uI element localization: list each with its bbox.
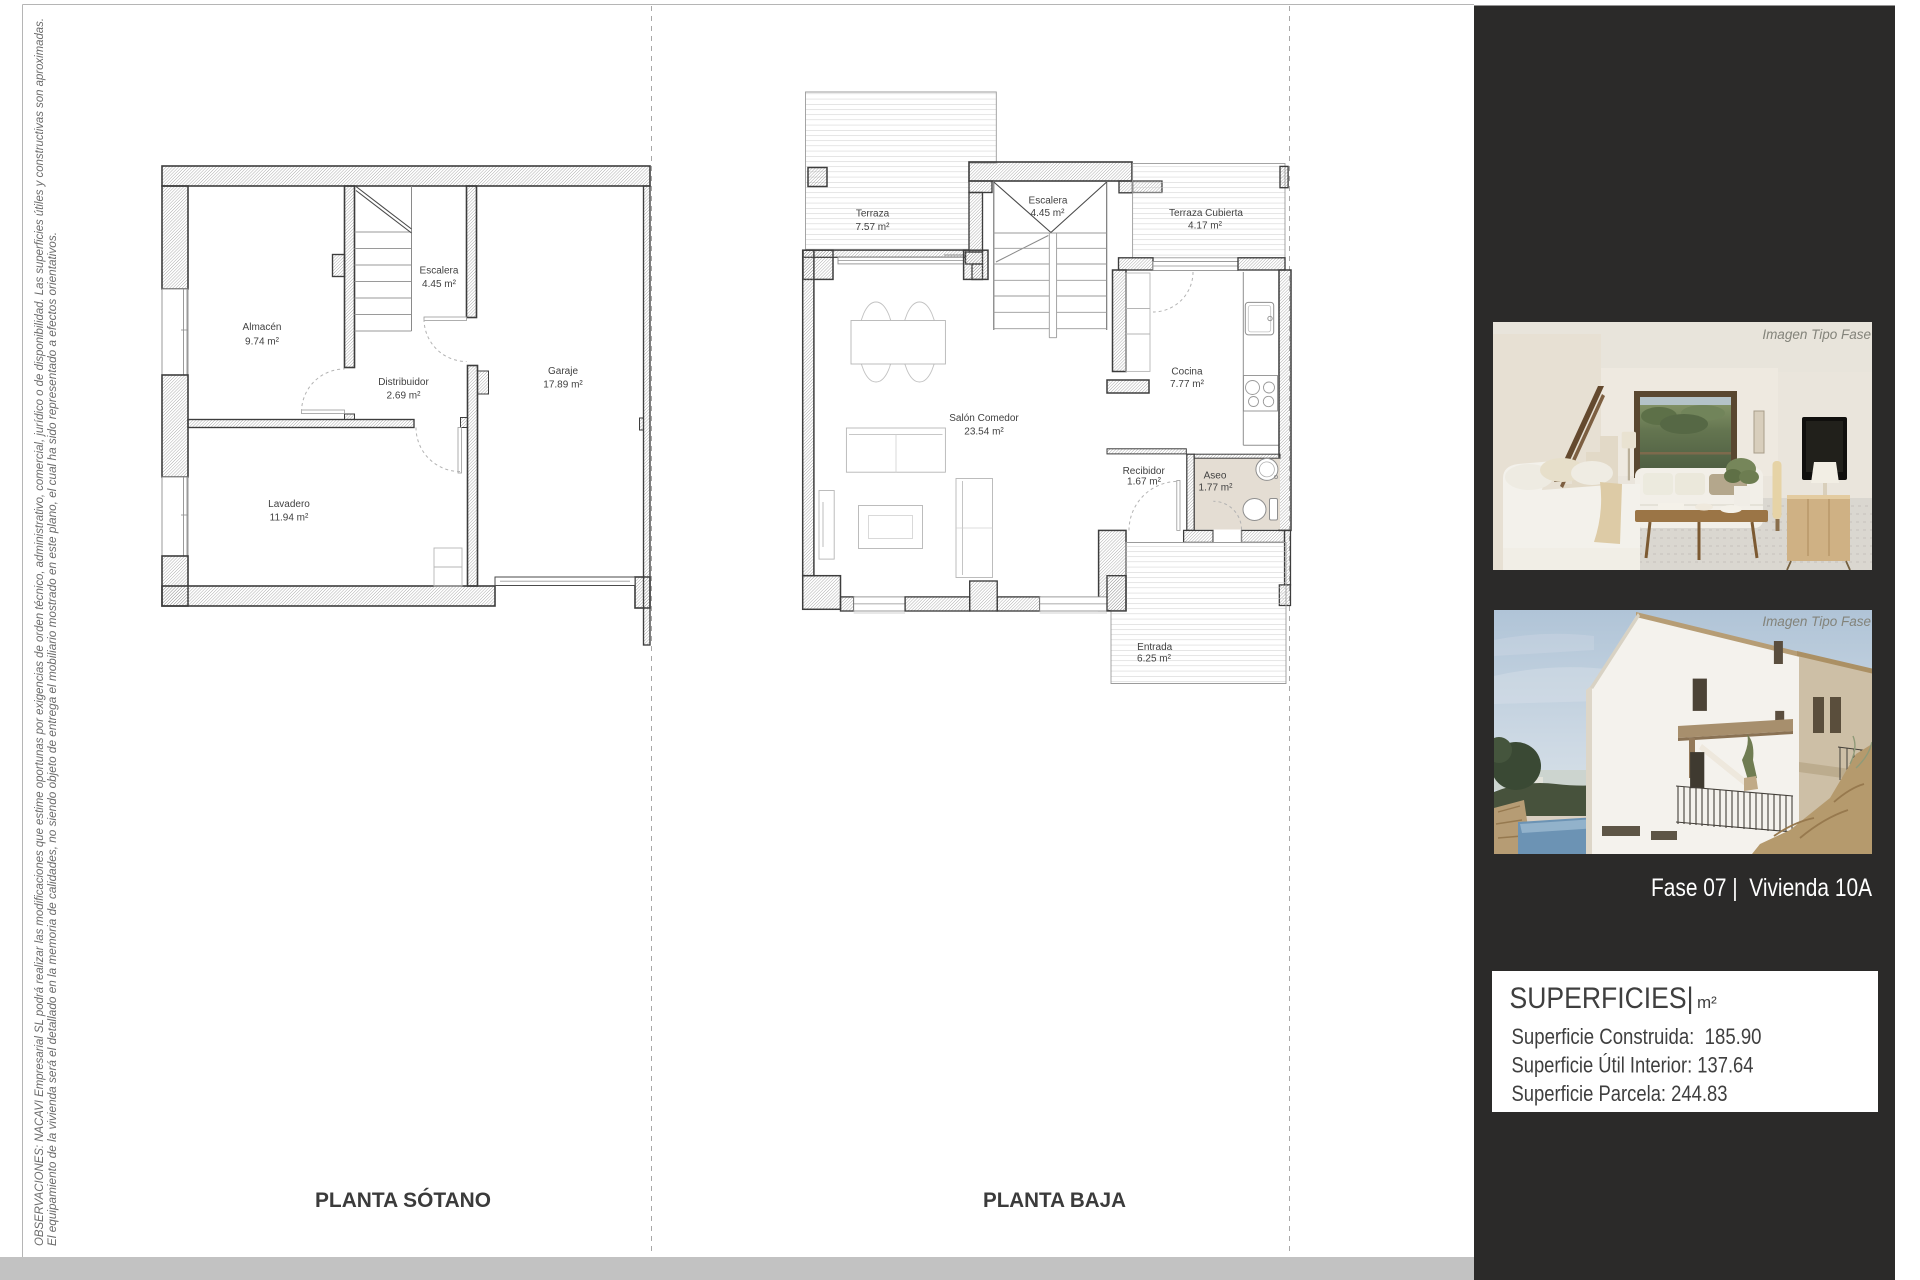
svg-text:Distribuidor: Distribuidor [378, 377, 429, 388]
svg-text:OBSERVACIONES: NACAVI Empresar: OBSERVACIONES: NACAVI Empresarial SL pod… [32, 18, 46, 1246]
svg-text:Cocina: Cocina [1171, 367, 1203, 378]
svg-text:Superficie Construida: 185.90: Superficie Construida: 185.90 [1512, 1024, 1762, 1049]
svg-text:Superficie Parcela: 244.83: Superficie Parcela: 244.83 [1512, 1081, 1728, 1106]
svg-text:El equipamiento de la vivienda: El equipamiento de la vivienda será el d… [45, 232, 59, 1246]
svg-text:SUPERFICIES|: SUPERFICIES| [1510, 982, 1694, 1015]
svg-text:6.25 m²: 6.25 m² [1137, 654, 1172, 665]
svg-text:4.17 m²: 4.17 m² [1188, 221, 1223, 232]
svg-text:17.89 m²: 17.89 m² [543, 380, 583, 391]
svg-text:Imagen Tipo Fase: Imagen Tipo Fase [1762, 327, 1871, 342]
svg-text:Lavadero: Lavadero [268, 499, 310, 510]
svg-text:4.45 m²: 4.45 m² [1031, 208, 1066, 219]
svg-text:Recibidor: Recibidor [1123, 466, 1166, 477]
svg-text:23.54 m²: 23.54 m² [964, 427, 1004, 438]
svg-text:7.77 m²: 7.77 m² [1170, 379, 1205, 390]
svg-text:Garaje: Garaje [548, 366, 578, 377]
svg-text:2.69 m²: 2.69 m² [387, 391, 422, 402]
svg-text:Escalera: Escalera [1029, 196, 1068, 207]
svg-text:9.74 m²: 9.74 m² [245, 337, 280, 348]
svg-text:PLANTA SÓTANO: PLANTA SÓTANO [315, 1188, 491, 1212]
svg-text:Entrada: Entrada [1137, 642, 1172, 653]
svg-text:11.94 m²: 11.94 m² [270, 513, 309, 524]
svg-text:m²: m² [1697, 993, 1717, 1012]
svg-text:7.57 m²: 7.57 m² [856, 222, 891, 233]
svg-text:Aseo: Aseo [1204, 471, 1227, 482]
svg-text:Almacén: Almacén [243, 322, 282, 333]
svg-text:1.77 m²: 1.77 m² [1199, 482, 1234, 493]
svg-text:Terraza: Terraza [856, 209, 890, 220]
svg-text:PLANTA BAJA: PLANTA BAJA [983, 1189, 1126, 1212]
svg-text:Superficie Útil Interior: 137.: Superficie Útil Interior: 137.64 [1512, 1053, 1754, 1078]
svg-text:Escalera: Escalera [420, 266, 459, 277]
svg-text:Imagen Tipo Fase: Imagen Tipo Fase [1762, 614, 1871, 629]
svg-text:Fase 07 | Vivienda 10A: Fase 07 | Vivienda 10A [1651, 874, 1872, 902]
svg-text:Terraza Cubierta: Terraza Cubierta [1169, 208, 1243, 219]
svg-text:1.67 m²: 1.67 m² [1127, 477, 1162, 488]
svg-text:4.45 m²: 4.45 m² [422, 279, 457, 290]
svg-text:Salón Comedor: Salón Comedor [949, 413, 1019, 424]
